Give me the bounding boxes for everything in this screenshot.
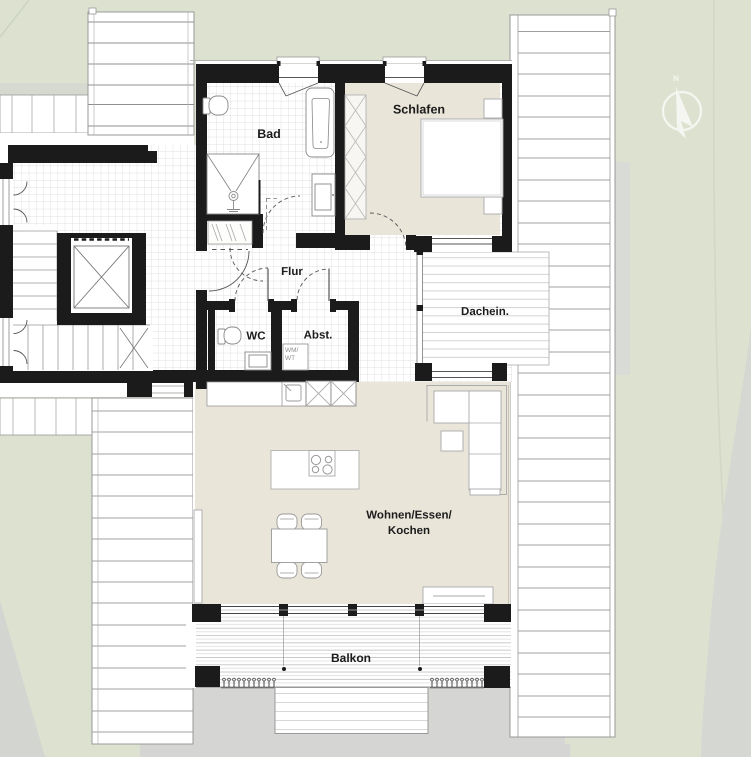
svg-text:Wohnen/Essen/: Wohnen/Essen/ bbox=[366, 510, 452, 522]
svg-text:Abst.: Abst. bbox=[304, 330, 333, 342]
svg-text:N: N bbox=[673, 74, 679, 83]
svg-text:Flur: Flur bbox=[281, 266, 303, 278]
svg-text:WM/: WM/ bbox=[285, 347, 299, 354]
svg-text:WC: WC bbox=[246, 331, 265, 343]
svg-text:Kochen: Kochen bbox=[388, 525, 430, 537]
svg-text:WT: WT bbox=[285, 355, 295, 362]
svg-text:Bad: Bad bbox=[257, 127, 281, 141]
svg-text:Balkon: Balkon bbox=[331, 651, 371, 665]
svg-text:Dachein.: Dachein. bbox=[461, 306, 509, 318]
svg-text:Schlafen: Schlafen bbox=[393, 103, 445, 117]
